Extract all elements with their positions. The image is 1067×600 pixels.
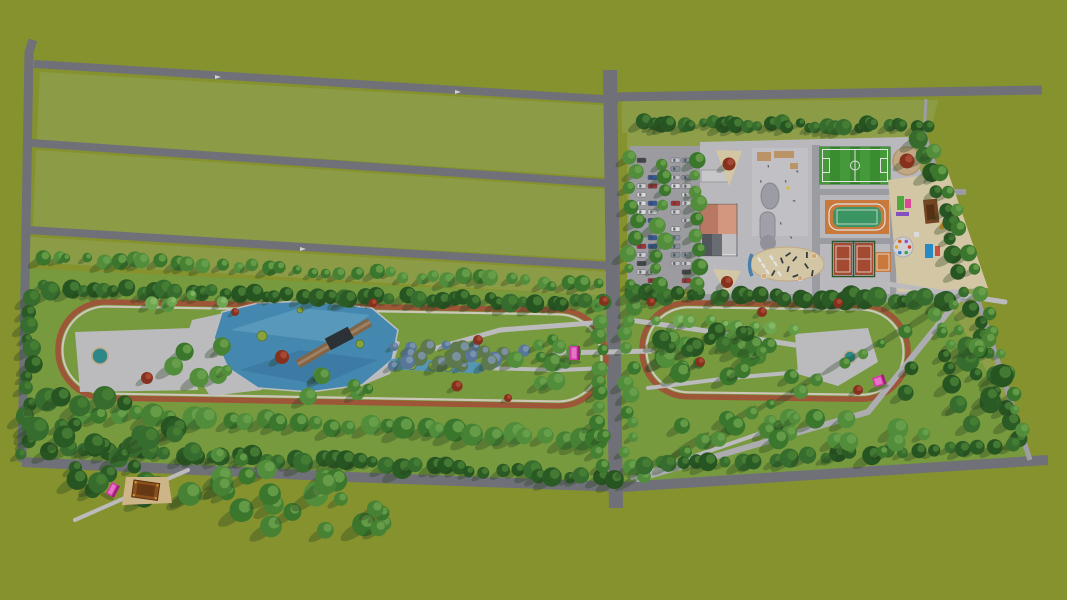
grain-overlay: [0, 0, 1067, 600]
park-masterplan-rendering: [0, 0, 1067, 600]
